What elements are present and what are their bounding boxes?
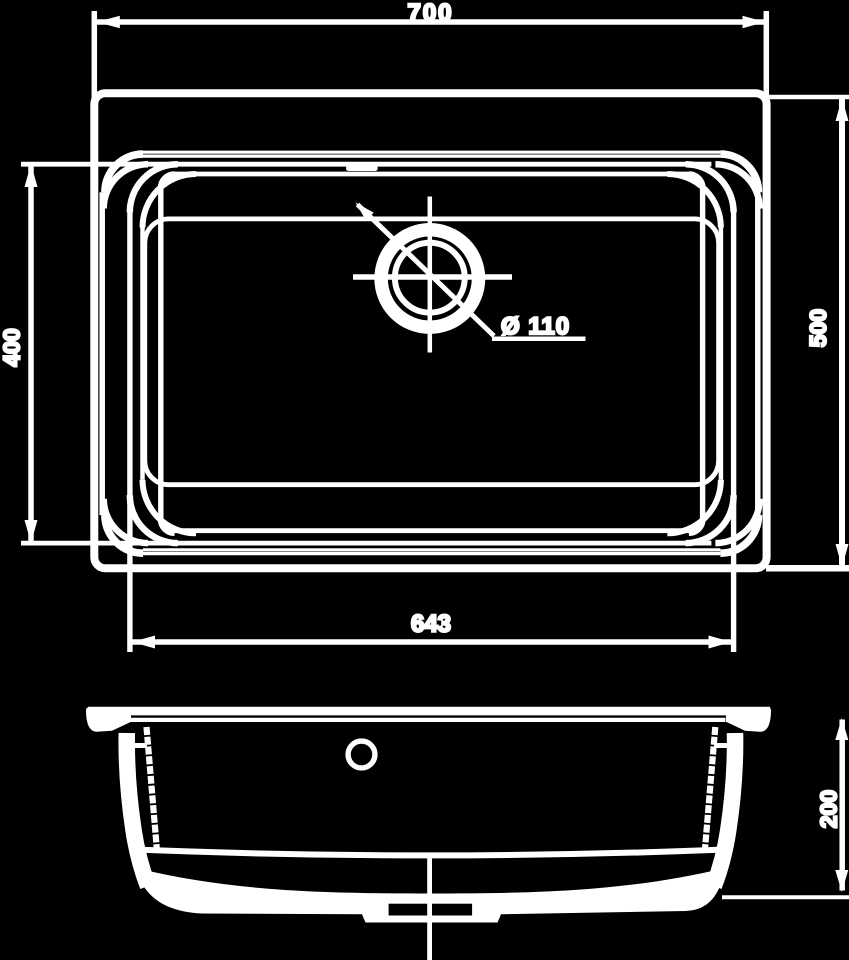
svg-text:500: 500: [805, 309, 831, 347]
svg-text:400: 400: [0, 328, 25, 366]
svg-text:Ø 110: Ø 110: [501, 313, 570, 340]
svg-text:700: 700: [407, 0, 453, 27]
svg-text:200: 200: [816, 790, 842, 828]
svg-text:643: 643: [411, 610, 451, 637]
